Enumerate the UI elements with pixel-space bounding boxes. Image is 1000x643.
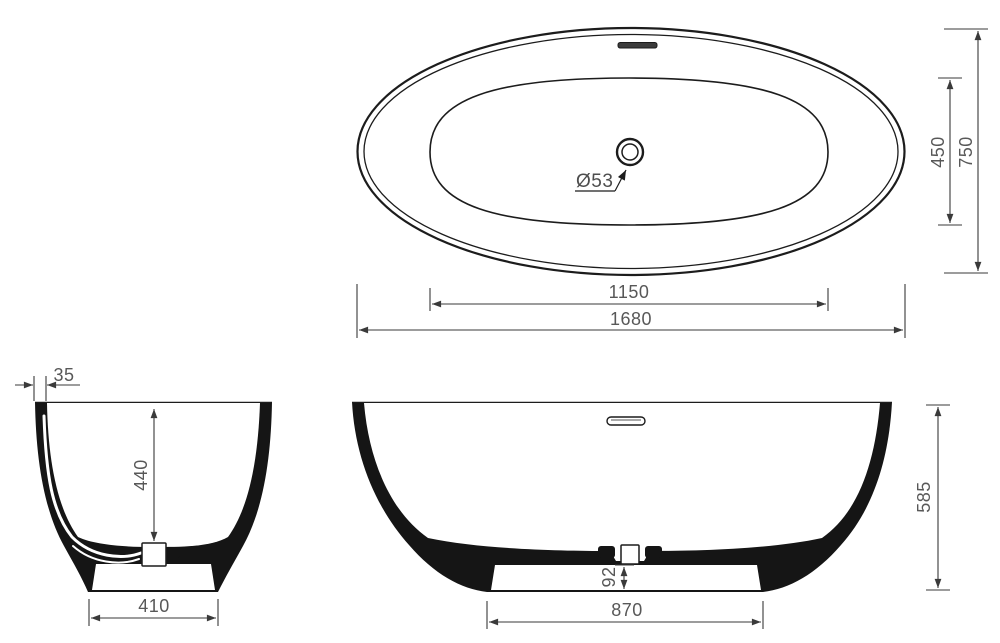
dim-overall-height-585: 585 bbox=[914, 405, 950, 590]
tub-basin-outline bbox=[430, 78, 828, 225]
plan-view: Ø53 450 750 1150 1680 bbox=[357, 28, 988, 338]
dim-base-length-870: 870 bbox=[487, 600, 763, 629]
dim-overall-length: 1680 bbox=[610, 309, 652, 329]
base-cavity bbox=[92, 564, 215, 590]
side-section-view: 585 92 870 bbox=[352, 402, 950, 629]
leader-arrow-line bbox=[615, 170, 626, 191]
dim-rim-thickness: 35 bbox=[53, 365, 74, 385]
dim-base-height: 92 bbox=[599, 566, 619, 587]
dim-overall-width-750: 750 bbox=[944, 29, 988, 273]
drain-recess-pocket bbox=[167, 547, 180, 558]
dim-rim-thickness-35: 35 bbox=[15, 365, 80, 401]
drain-inner-circle bbox=[622, 144, 638, 160]
drain-outer-circle bbox=[617, 139, 643, 165]
dim-inner-depth: 440 bbox=[131, 459, 151, 491]
dim-inner-length-1150: 1150 bbox=[430, 282, 828, 311]
drain-recess-pocket-right bbox=[645, 546, 662, 558]
end-section-view: 35 440 410 bbox=[15, 365, 272, 626]
tub-outer-rim-outline bbox=[358, 28, 905, 275]
dim-base-width-410: 410 bbox=[89, 596, 218, 626]
technical-drawing-canvas: Ø53 450 750 1150 1680 bbox=[0, 0, 1000, 643]
drain-diameter-callout: Ø53 bbox=[575, 170, 626, 192]
drain-recess-pocket-left bbox=[598, 546, 615, 558]
dim-inner-width: 450 bbox=[928, 136, 948, 168]
base-cavity bbox=[491, 565, 761, 590]
overflow-slot-plan bbox=[618, 43, 657, 49]
dim-inner-length: 1150 bbox=[609, 282, 650, 302]
basin-interior bbox=[364, 403, 880, 561]
dim-base-length: 870 bbox=[611, 600, 643, 620]
drain-fitting-end-section bbox=[142, 543, 166, 566]
technical-drawing-page: Ø53 450 750 1150 1680 bbox=[0, 0, 1000, 643]
overflow-slot-side bbox=[607, 417, 645, 425]
dim-overall-height: 585 bbox=[914, 481, 934, 513]
dim-overall-width: 750 bbox=[956, 136, 976, 168]
drain-fitting-side-section bbox=[621, 545, 639, 564]
tub-rim-inner-edge-outline bbox=[364, 35, 898, 269]
dim-base-width: 410 bbox=[138, 596, 170, 616]
dim-drain-diameter: Ø53 bbox=[576, 171, 613, 192]
